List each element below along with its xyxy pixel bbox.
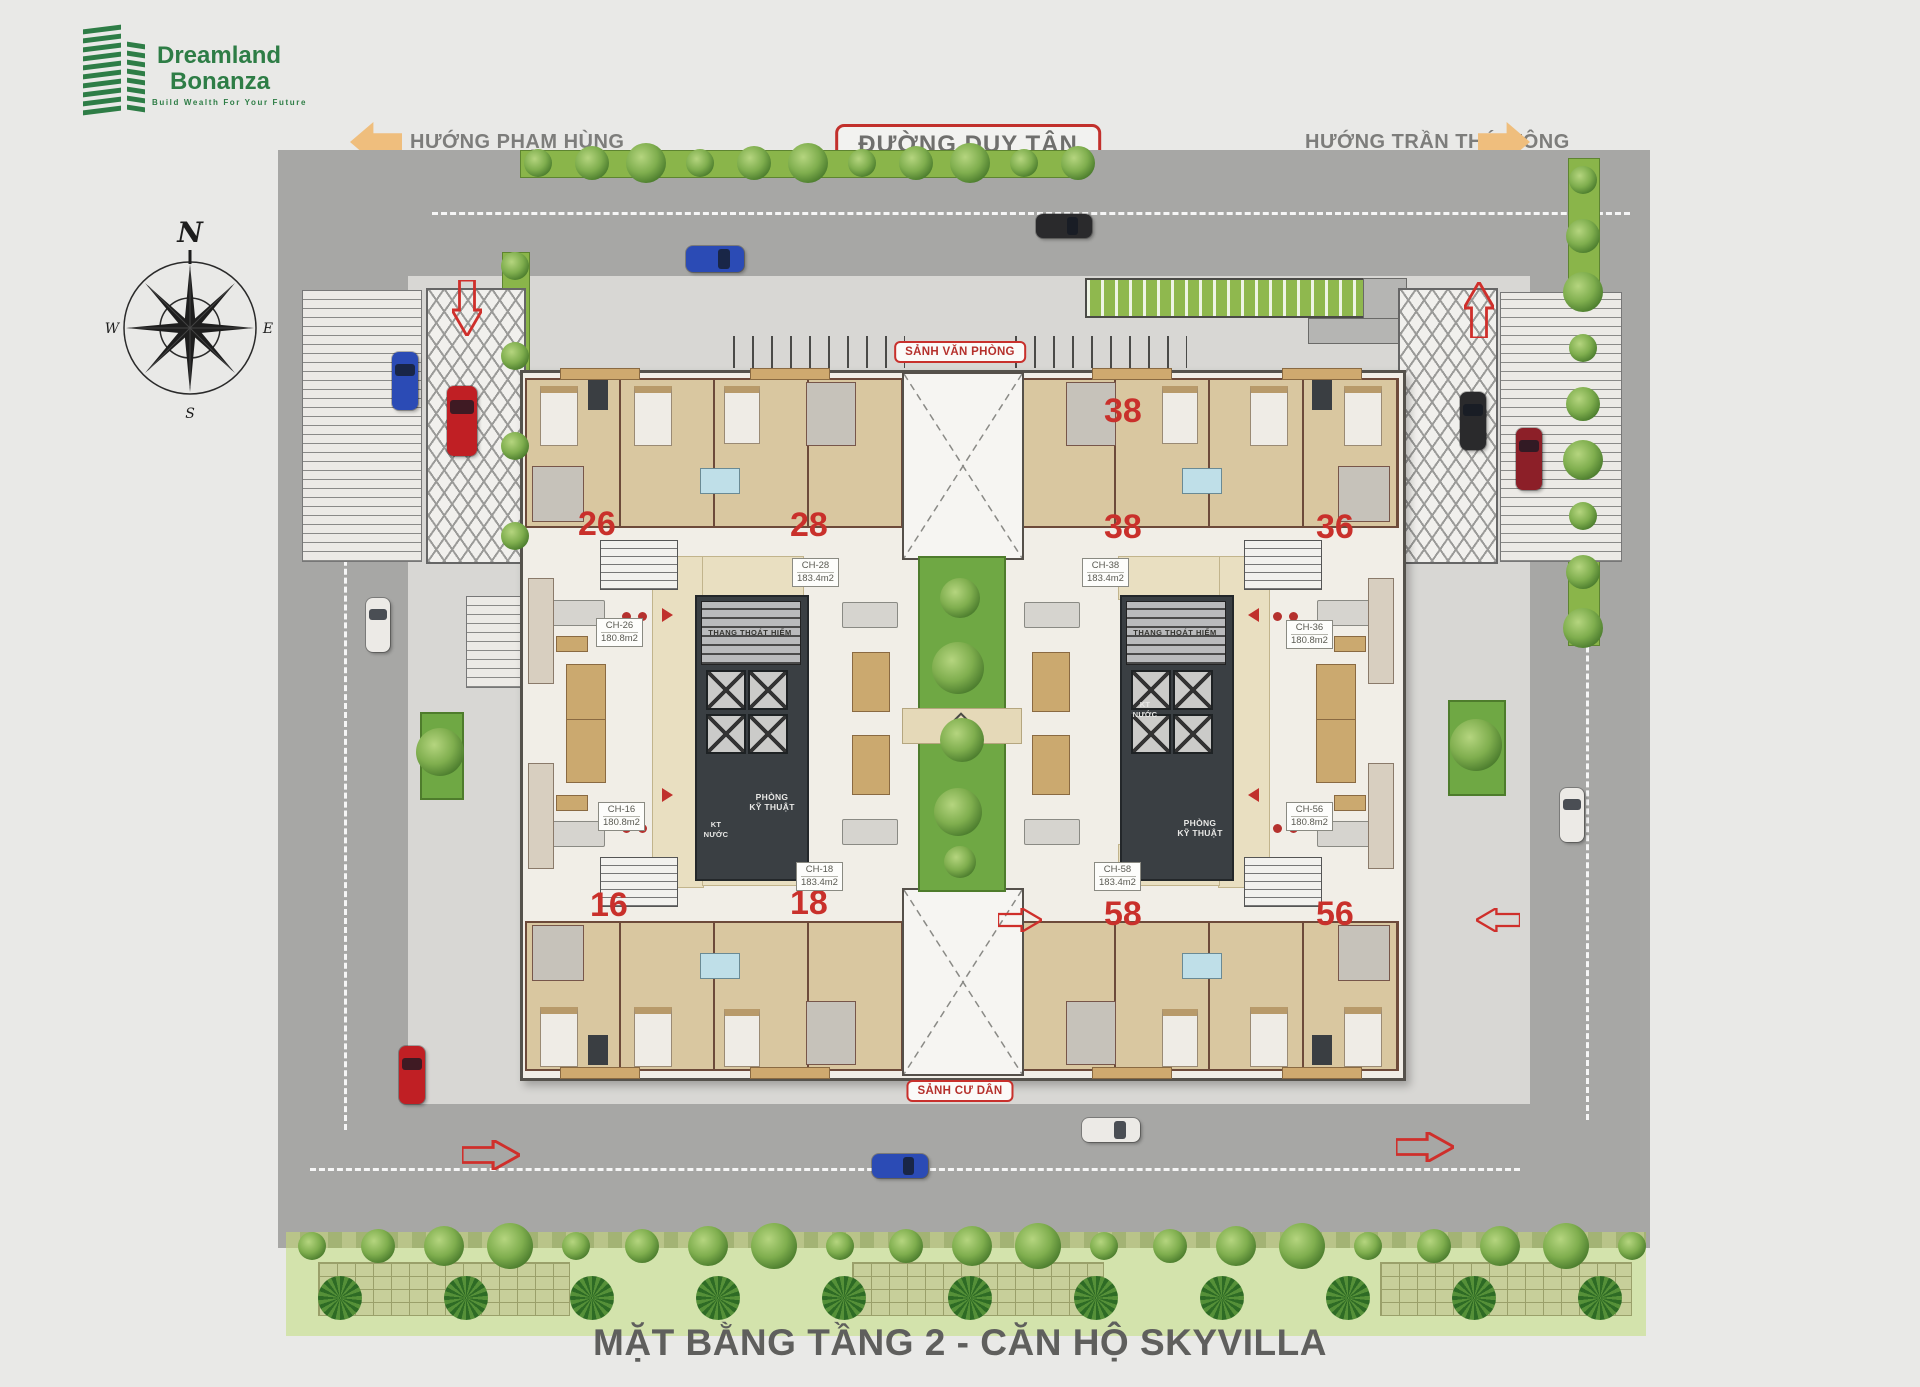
water-tech-label-left: KT NƯỚC (697, 820, 735, 840)
furniture-bed (634, 386, 672, 446)
tree (950, 143, 990, 183)
logo-bar (127, 87, 145, 94)
car-windshield (1114, 1121, 1126, 1139)
tree (1563, 272, 1603, 312)
balcony (560, 1067, 640, 1079)
tree (940, 578, 980, 618)
compass-n: N (176, 216, 204, 249)
tree (487, 1223, 533, 1269)
parking-bay-left (302, 290, 422, 562)
jacuzzi (700, 953, 740, 979)
tree (625, 1229, 659, 1263)
car (392, 352, 418, 410)
tree (1569, 166, 1597, 194)
tech-room-label-right: PHÒNG KỸ THUẬT (1170, 818, 1230, 838)
unit-number-16: 16 (590, 886, 628, 925)
logo-bar (127, 69, 145, 76)
furniture-counter (528, 578, 554, 684)
tree (1010, 149, 1038, 177)
furniture-dark (588, 1035, 608, 1065)
car (1516, 428, 1542, 490)
car (1036, 214, 1092, 238)
unit-16-code: CH-16 (603, 804, 640, 817)
palm-tree (1074, 1276, 1118, 1320)
elevator (748, 714, 788, 754)
tree (899, 146, 933, 180)
tree (626, 143, 666, 183)
office-lobby-void (902, 372, 1024, 560)
furniture-dark (1312, 1035, 1332, 1065)
furniture-counter (1368, 578, 1394, 684)
tree (575, 146, 609, 180)
palm-tree (696, 1276, 740, 1320)
car-windshield (718, 249, 730, 269)
logo-bar (83, 61, 121, 70)
logo-bar (83, 43, 121, 52)
unit-number-58: 58 (1104, 895, 1142, 934)
unit-56-code: CH-56 (1291, 804, 1328, 817)
balcony (750, 368, 830, 380)
tree (1563, 440, 1603, 480)
furniture-reddot (1273, 824, 1282, 833)
car (1560, 788, 1584, 842)
unit-tag-56: CH-56 180.8m2 (1286, 802, 1333, 831)
furniture-bed (540, 386, 578, 446)
logo-bar (127, 96, 145, 103)
door-marker (1248, 608, 1259, 622)
logo-bar (83, 34, 121, 43)
elevator (706, 670, 746, 710)
car (366, 598, 390, 652)
furniture-tableF (852, 652, 890, 712)
lane-line-top (432, 212, 1630, 215)
furniture-reddot (1273, 612, 1282, 621)
tree (1563, 608, 1603, 648)
unit-tag-58: CH-58 183.4m2 (1094, 862, 1141, 891)
car-windshield (1563, 799, 1581, 810)
tech-room-left-line1: PHÒNG (756, 792, 789, 802)
unit-tag-26: CH-26 180.8m2 (596, 618, 643, 647)
furniture-tableF (1032, 652, 1070, 712)
office-lobby-label: SẢNH VĂN PHÒNG (894, 341, 1026, 363)
furniture-stairp (600, 540, 678, 590)
tree (562, 1232, 590, 1260)
tree (524, 149, 552, 177)
tree (501, 252, 529, 280)
car-windshield (1067, 217, 1078, 235)
unit-tag-28: CH-28 183.4m2 (792, 558, 839, 587)
furniture-stairp (1244, 857, 1322, 907)
tree (1061, 146, 1095, 180)
water-tech-right-line1: KT (1140, 700, 1151, 709)
furniture-bath (1066, 1001, 1116, 1065)
furniture-tableF (1032, 735, 1070, 795)
parking-bay-right (1500, 292, 1622, 562)
tech-room-right-line1: PHÒNG (1184, 818, 1217, 828)
tree (1279, 1223, 1325, 1269)
palm-tree (948, 1276, 992, 1320)
furniture-stairp (1244, 540, 1322, 590)
tree (940, 718, 984, 762)
furniture-counter (1368, 763, 1394, 869)
unit-58-code: CH-58 (1099, 864, 1136, 877)
furniture-bed (724, 1009, 760, 1067)
furniture-sofa (1024, 602, 1080, 628)
elevator (1131, 714, 1171, 754)
external-stair-left (466, 596, 524, 688)
unit-number-38-upper: 38 (1104, 392, 1142, 431)
tree (751, 1223, 797, 1269)
furniture-bath (806, 382, 856, 446)
car (1082, 1118, 1140, 1142)
furniture-bed (1250, 1007, 1288, 1067)
furniture-bed (1344, 386, 1382, 446)
furniture-bath (806, 1001, 856, 1065)
tree (826, 1232, 854, 1260)
logo-name-line1: Dreamland (157, 42, 281, 70)
stair-label-right: THANG THOÁT HIỂM (1120, 628, 1230, 637)
furniture-bed (1344, 1007, 1382, 1067)
furniture-bath (532, 466, 584, 522)
tree (501, 522, 529, 550)
dreamland-bonanza-logo-icon (83, 27, 145, 117)
furniture-tableF (852, 735, 890, 795)
door-marker (662, 608, 673, 622)
car (872, 1154, 928, 1178)
palm-tree (1326, 1276, 1370, 1320)
elevator (1173, 714, 1213, 754)
compass-w: W (105, 321, 121, 337)
tech-room-right-line2: KỸ THUẬT (1177, 828, 1222, 838)
elevator (706, 714, 746, 754)
traffic-arrow-up (1464, 282, 1494, 338)
tree (424, 1226, 464, 1266)
tree (1015, 1223, 1061, 1269)
traffic-arrow-right (998, 908, 1042, 932)
car-windshield (1463, 404, 1483, 416)
furniture-bed (540, 1007, 578, 1067)
tree (1354, 1232, 1382, 1260)
compass-rose-icon: N E S W (100, 200, 280, 430)
tree (944, 846, 976, 878)
furniture-bed (724, 386, 760, 444)
unit-tag-36: CH-36 180.8m2 (1286, 620, 1333, 649)
palm-tree (570, 1276, 614, 1320)
stair-label-left: THANG THOÁT HIỂM (695, 628, 805, 637)
elevator (748, 670, 788, 710)
unit-tag-18: CH-18 183.4m2 (796, 862, 843, 891)
furniture-tableF (556, 795, 588, 811)
tree (848, 149, 876, 177)
unit-28-area: 183.4m2 (797, 573, 834, 584)
balcony (750, 1067, 830, 1079)
logo-tagline: Build Wealth For Your Future (152, 98, 307, 107)
unit-number-36: 36 (1316, 508, 1354, 547)
car (399, 1046, 425, 1104)
logo-bar (83, 88, 121, 97)
tree (1417, 1229, 1451, 1263)
car (447, 386, 477, 456)
furniture-dark (1312, 380, 1332, 410)
balcony (1282, 368, 1362, 380)
tree (788, 143, 828, 183)
logo-bar (83, 106, 121, 115)
unit-tag-38: CH-38 183.4m2 (1082, 558, 1129, 587)
unit-38-code: CH-38 (1087, 560, 1124, 573)
furniture-sofa (549, 821, 605, 847)
logo-bar (83, 25, 121, 34)
logo-bar (127, 42, 145, 49)
water-tech-right-line2: NƯỚC (1133, 710, 1158, 719)
tree (1569, 334, 1597, 362)
traffic-arrow-right (1396, 1132, 1454, 1162)
logo-bar (83, 97, 121, 106)
unit-28-code: CH-28 (797, 560, 834, 573)
unit-number-28: 28 (790, 506, 828, 545)
palm-tree (822, 1276, 866, 1320)
jacuzzi (1182, 468, 1222, 494)
compass-s: S (185, 406, 195, 422)
unit-26-area: 180.8m2 (601, 633, 638, 644)
furniture-bed (1162, 386, 1198, 444)
water-tech-left-line1: KT (711, 820, 722, 829)
palm-tree (444, 1276, 488, 1320)
tree (501, 432, 529, 460)
corridor-pad-tr (1118, 556, 1220, 600)
tree (1566, 387, 1600, 421)
furniture-bed (634, 1007, 672, 1067)
unit-number-26: 26 (578, 505, 616, 544)
car-windshield (395, 364, 415, 376)
unit-16-area: 180.8m2 (603, 817, 640, 828)
furniture-tableF (566, 719, 606, 783)
tree (934, 788, 982, 836)
unit-number-38: 38 (1104, 508, 1142, 547)
parking-ticks-right (1015, 336, 1187, 368)
balcony (1092, 1067, 1172, 1079)
entrance-canopy (1085, 278, 1367, 318)
unit-38-area: 183.4m2 (1087, 573, 1124, 584)
furniture-bath (532, 925, 584, 981)
logo-bar (127, 60, 145, 67)
tree (361, 1229, 395, 1263)
parking-ticks-left (733, 336, 905, 368)
service-block (1308, 318, 1402, 344)
car (686, 246, 744, 272)
tree (688, 1226, 728, 1266)
traffic-arrow-right (462, 1140, 520, 1170)
furniture-sofa (842, 602, 898, 628)
traffic-arrow-down (452, 280, 482, 336)
tree (416, 728, 464, 776)
tree (298, 1232, 326, 1260)
water-tech-left-line2: NƯỚC (704, 830, 729, 839)
unit-18-area: 183.4m2 (801, 877, 838, 888)
balcony (1092, 368, 1172, 380)
logo-bar (127, 105, 145, 112)
furniture-tableF (556, 636, 588, 652)
car (1460, 392, 1486, 450)
tree (1216, 1226, 1256, 1266)
logo-bar (83, 79, 121, 88)
furniture-sofa (1024, 819, 1080, 845)
jacuzzi (700, 468, 740, 494)
traffic-arrow-left (1476, 908, 1520, 932)
furniture-dark (588, 380, 608, 410)
logo-bar (83, 70, 121, 79)
jacuzzi (1182, 953, 1222, 979)
elevator (1173, 670, 1213, 710)
tree (1090, 1232, 1118, 1260)
water-tech-label-right: KT NƯỚC (1126, 700, 1164, 720)
tree (737, 146, 771, 180)
palm-tree (1200, 1276, 1244, 1320)
car-windshield (1519, 440, 1539, 452)
unit-18-code: CH-18 (801, 864, 838, 877)
tree (1153, 1229, 1187, 1263)
tree (952, 1226, 992, 1266)
unit-58-area: 183.4m2 (1099, 877, 1136, 888)
tree (1566, 555, 1600, 589)
corridor-pad-tl (702, 556, 804, 600)
tree (1450, 719, 1502, 771)
furniture-sofa (842, 819, 898, 845)
unit-number-56: 56 (1316, 895, 1354, 934)
compass-e: E (262, 321, 273, 337)
logo-name-line2: Bonanza (170, 68, 270, 96)
balcony (1282, 1067, 1362, 1079)
page-title: MẶT BẰNG TẦNG 2 - CĂN HỘ SKYVILLA (0, 1322, 1920, 1364)
car-windshield (450, 400, 474, 414)
door-marker (1248, 788, 1259, 802)
furniture-tableF (1334, 795, 1366, 811)
palm-tree (318, 1276, 362, 1320)
tech-room-label-left: PHÒNG KỸ THUẬT (742, 792, 802, 812)
tree (1543, 1223, 1589, 1269)
tree (1618, 1232, 1646, 1260)
logo-bar (127, 78, 145, 85)
tree (501, 342, 529, 370)
furniture-counter (528, 763, 554, 869)
furniture-bed (1162, 1009, 1198, 1067)
palm-tree (1578, 1276, 1622, 1320)
site-plan-canvas: Dreamland Bonanza Build Wealth For Your … (0, 0, 1920, 1387)
tree (932, 642, 984, 694)
car-windshield (369, 609, 387, 620)
furniture-tableF (1334, 636, 1366, 652)
tree (1569, 502, 1597, 530)
tree (1480, 1226, 1520, 1266)
unit-26-code: CH-26 (601, 620, 638, 633)
furniture-bed (1250, 386, 1288, 446)
car-windshield (402, 1058, 422, 1070)
unit-tag-16: CH-16 180.8m2 (598, 802, 645, 831)
unit-56-area: 180.8m2 (1291, 817, 1328, 828)
logo-bar (83, 52, 121, 61)
unit-36-area: 180.8m2 (1291, 635, 1328, 646)
car-windshield (903, 1157, 914, 1175)
logo-bar (127, 51, 145, 58)
unit-36-code: CH-36 (1291, 622, 1328, 635)
palm-tree (1452, 1276, 1496, 1320)
tech-room-left-line2: KỸ THUẬT (749, 802, 794, 812)
balcony (560, 368, 640, 380)
furniture-tableF (1316, 719, 1356, 783)
tree (889, 1229, 923, 1263)
tree (1566, 219, 1600, 253)
tree (686, 149, 714, 177)
door-marker (662, 788, 673, 802)
resident-lobby-label: SẢNH CƯ DÂN (906, 1080, 1013, 1102)
